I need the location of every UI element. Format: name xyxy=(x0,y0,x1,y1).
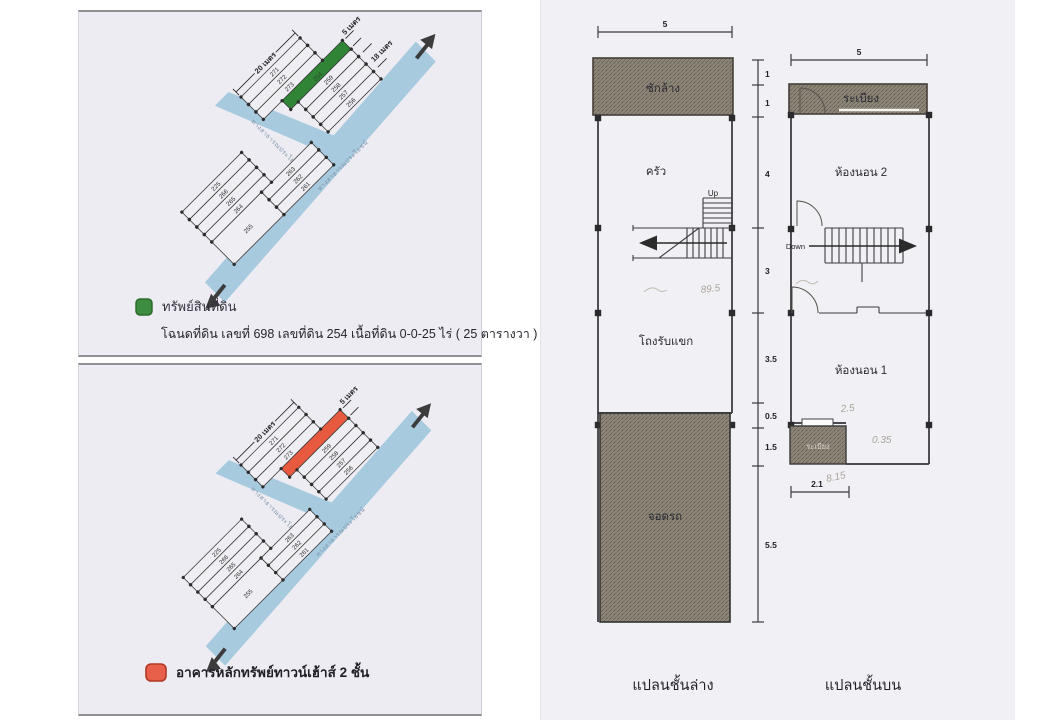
floorplans-drawing: 5 ซักล้าง ครัว Up xyxy=(541,0,1016,720)
staircase-up: Up xyxy=(633,189,732,261)
dim-balcony-label: 2.1 xyxy=(811,479,823,489)
legend-title: ทรัพย์สินที่ดิน xyxy=(162,296,236,317)
floorplan-page: 5 ซักล้าง ครัว Up xyxy=(540,0,1015,720)
door-arc-bed2 xyxy=(797,201,822,226)
dim-value: 4 xyxy=(765,169,770,179)
land-document-panel-green: ทางสาธารณประโยชน์ ทางสาธารณประโยชน์ xyxy=(78,10,482,357)
upper-floor-plan: 5 ระเบียง xyxy=(786,47,932,694)
dim-width-label: 5 xyxy=(663,19,668,29)
pencil-note: 8.15 xyxy=(825,470,847,485)
dim-value: 1.5 xyxy=(765,442,777,452)
staircase-down: Down xyxy=(786,228,917,282)
legend-land-asset: ทรัพย์สินที่ดิน โฉนดที่ดิน เลขที่ 698 เล… xyxy=(135,296,537,344)
pencil-note: 2.5 xyxy=(839,403,855,415)
orange-swatch-icon xyxy=(145,663,167,682)
balcony-railing-lower xyxy=(802,419,833,426)
caption-upper-plan: แปลนชั้นบน xyxy=(825,674,901,694)
dim-value: 0.5 xyxy=(765,411,777,421)
dim-width-label: 5 xyxy=(857,47,862,57)
land-document-panel-orange: ทางสาธารณประโยชน์ ทางสาธารณประโยชน์ xyxy=(78,363,482,716)
room-label-hall: โถงรับแขก xyxy=(639,334,694,348)
columns-upper xyxy=(788,112,932,428)
dim-value: 3 xyxy=(765,266,770,276)
room-label-bed2: ห้องนอน 2 xyxy=(835,166,887,179)
dimension-strip-right: 1 1 4 3 3.5 0.5 1.5 5.5 xyxy=(752,60,777,622)
stair-down-label: Down xyxy=(786,242,805,251)
pencil-note: 0.35 xyxy=(872,435,892,446)
deed-detail-text: โฉนดที่ดิน เลขที่ 698 เลขที่ดิน 254 เนื้… xyxy=(161,324,537,344)
dim-value: 1 xyxy=(765,69,770,79)
legend-title: อาคารหลักทรัพย์ทาวน์เฮ้าส์ 2 ชั้น xyxy=(176,661,369,683)
room-label-balcony-top: ระเบียง xyxy=(843,92,879,105)
pencil-scribble xyxy=(644,288,667,292)
lower-floor-plan: 5 ซักล้าง ครัว Up xyxy=(593,19,777,694)
room-label-kitchen: ครัว xyxy=(646,166,666,178)
dim-value: 5.5 xyxy=(765,540,777,550)
pencil-scribble xyxy=(796,280,818,284)
room-label-balcony-bottom: ระเบียง xyxy=(806,442,830,451)
legend-building: อาคารหลักทรัพย์ทาวน์เฮ้าส์ 2 ชั้น xyxy=(145,661,369,683)
door-arc-bed1 xyxy=(792,287,818,313)
dim-18m-label: 18 เมตร xyxy=(369,38,395,64)
dimension-top-upper: 5 xyxy=(791,47,927,66)
dim-value: 1 xyxy=(765,98,770,108)
stair-up-label: Up xyxy=(708,189,719,198)
pencil-note: 89.5 xyxy=(700,283,721,296)
dim-value: 3.5 xyxy=(765,354,777,364)
room-label-parking: จอดรถ xyxy=(648,511,682,523)
dim-5m-label: 5 เมตร xyxy=(340,14,363,37)
room-label-wash: ซักล้าง xyxy=(646,82,680,95)
room-label-bed1: ห้องนอน 1 xyxy=(835,364,887,377)
dimension-18m: 18 เมตร xyxy=(363,32,398,67)
green-swatch-icon xyxy=(135,298,153,316)
dimension-top-lower: 5 xyxy=(598,19,732,38)
caption-lower-plan: แปลนชั้นล่าง xyxy=(632,674,713,694)
columns-lower xyxy=(595,115,735,428)
stair-direction-arrow xyxy=(639,236,727,251)
